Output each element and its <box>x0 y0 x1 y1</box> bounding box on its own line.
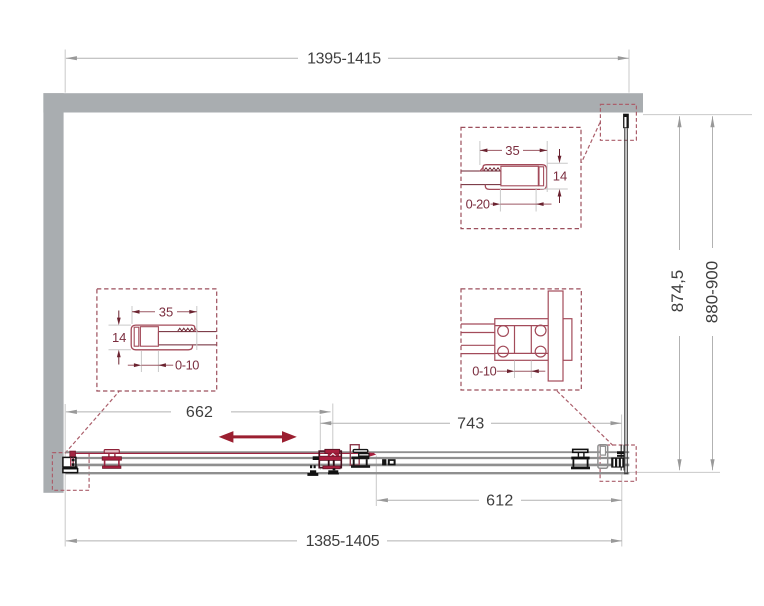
svg-text:880-900: 880-900 <box>703 261 722 323</box>
svg-text:0-10: 0-10 <box>175 357 199 372</box>
svg-text:35: 35 <box>505 143 519 158</box>
svg-text:1395-1415: 1395-1415 <box>307 50 381 67</box>
svg-text:0-20: 0-20 <box>466 197 490 212</box>
svg-text:662: 662 <box>186 404 213 421</box>
svg-text:14: 14 <box>553 169 567 184</box>
svg-text:35: 35 <box>159 304 173 319</box>
svg-text:874,5: 874,5 <box>668 270 687 313</box>
svg-text:0-10: 0-10 <box>472 363 496 378</box>
svg-text:14: 14 <box>112 330 126 345</box>
svg-text:612: 612 <box>486 492 513 509</box>
svg-text:743: 743 <box>457 415 484 432</box>
svg-text:1385-1405: 1385-1405 <box>306 533 380 550</box>
